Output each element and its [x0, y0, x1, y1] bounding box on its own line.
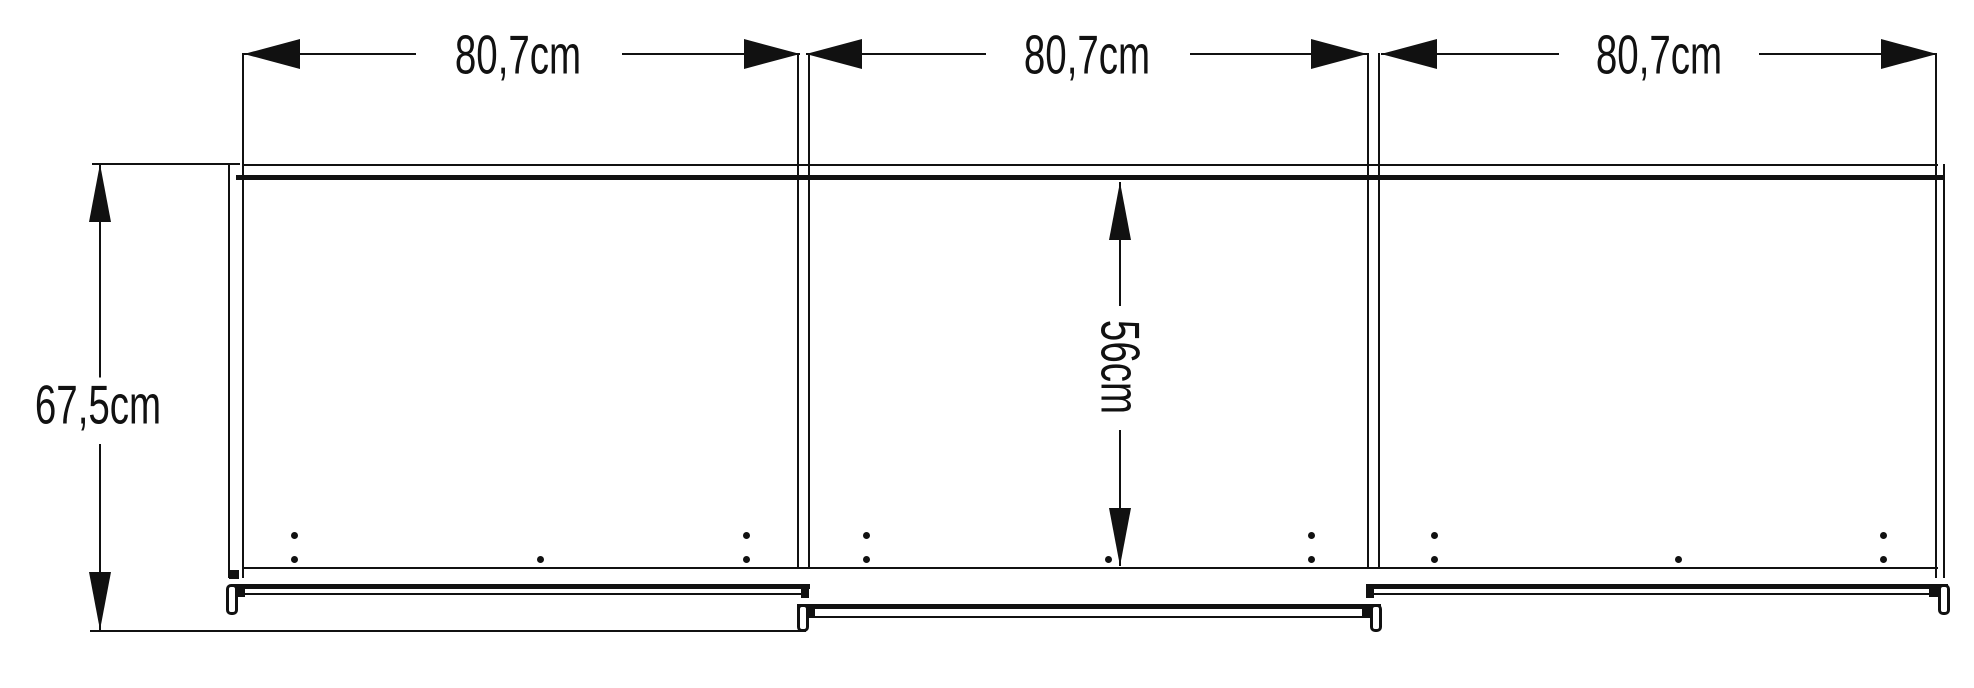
cabinet-left-outer-edge — [228, 164, 230, 578]
hole-dot — [1431, 556, 1438, 563]
door-divider-2-right-line — [1378, 53, 1380, 568]
hole-dot — [1308, 532, 1315, 539]
dim-width-3-arrow-left-icon — [1381, 39, 1437, 69]
door-divider-1-right-line — [808, 53, 810, 568]
dim-height-arrow-up-icon — [89, 164, 111, 222]
rail-end-cap — [801, 584, 809, 598]
dim-door-height-label: 56cm — [1093, 314, 1148, 419]
hole-dot — [537, 556, 544, 563]
hole-dot — [1431, 532, 1438, 539]
dim-width-3-label: 80,7cm — [1590, 28, 1727, 83]
hole-dot — [1880, 556, 1887, 563]
right-door-glider-foot — [1938, 584, 1950, 615]
dim-width-2-arrow-left-icon — [806, 39, 862, 69]
hole-dot — [743, 556, 750, 563]
right-door-bottom-rail-thick — [1366, 584, 1948, 589]
dim-width-2-label: 80,7cm — [1018, 28, 1155, 83]
dim-door-height-arrow-up-icon — [1109, 182, 1131, 240]
dim-height-label: 67,5cm — [29, 378, 166, 433]
middle-door-bottom-rail-thin — [797, 616, 1381, 618]
hole-dot — [1880, 532, 1887, 539]
right-door-glider-bolt — [1929, 588, 1938, 597]
door-divider-2-left-line — [1367, 53, 1369, 568]
hole-dot — [1308, 556, 1315, 563]
height-dim-top-reference-line — [92, 163, 240, 165]
cabinet-right-outer-edge — [1943, 164, 1945, 578]
left-door-bottom-rail-thin — [232, 593, 808, 595]
middle-door-glider-bolt-left — [806, 608, 815, 617]
hole-dot — [743, 532, 750, 539]
rail-end-cap — [1366, 584, 1374, 598]
dim-door-height-arrow-down-icon — [1109, 508, 1131, 566]
wardrobe-technical-drawing: 80,7cm 80,7cm 80,7cm — [0, 0, 1974, 688]
cabinet-right-inner-edge — [1935, 53, 1937, 578]
edge-bottom-detail — [229, 570, 239, 579]
dim-height-arrow-down-icon — [89, 572, 111, 630]
dim-width-1-arrow-left-icon — [244, 39, 300, 69]
door-panels-bottom-edge — [242, 567, 1938, 569]
dim-width-1-label: 80,7cm — [449, 28, 586, 83]
hole-dot — [291, 556, 298, 563]
middle-door-bottom-rail-thick — [797, 604, 1381, 609]
dim-width-2-arrow-right-icon — [1311, 39, 1367, 69]
cabinet-left-inner-edge — [242, 53, 244, 578]
cabinet-top-rail-thick — [236, 175, 1944, 180]
door-divider-1-left-line — [797, 53, 799, 568]
left-door-glider-bolt — [236, 588, 245, 597]
right-door-bottom-rail-thin — [1368, 593, 1946, 595]
hole-dot — [863, 532, 870, 539]
dim-width-3-arrow-right-icon — [1881, 39, 1937, 69]
hole-dot — [863, 556, 870, 563]
hole-dot — [1675, 556, 1682, 563]
middle-door-glider-bolt-right — [1362, 608, 1371, 617]
middle-door-glider-foot-right — [1370, 604, 1382, 632]
left-door-bottom-rail-thick — [232, 584, 810, 589]
hole-dot — [291, 532, 298, 539]
cabinet-top-thin-line — [244, 164, 1938, 166]
dim-width-1-arrow-right-icon — [744, 39, 800, 69]
height-dim-bottom-reference-line — [90, 630, 806, 632]
